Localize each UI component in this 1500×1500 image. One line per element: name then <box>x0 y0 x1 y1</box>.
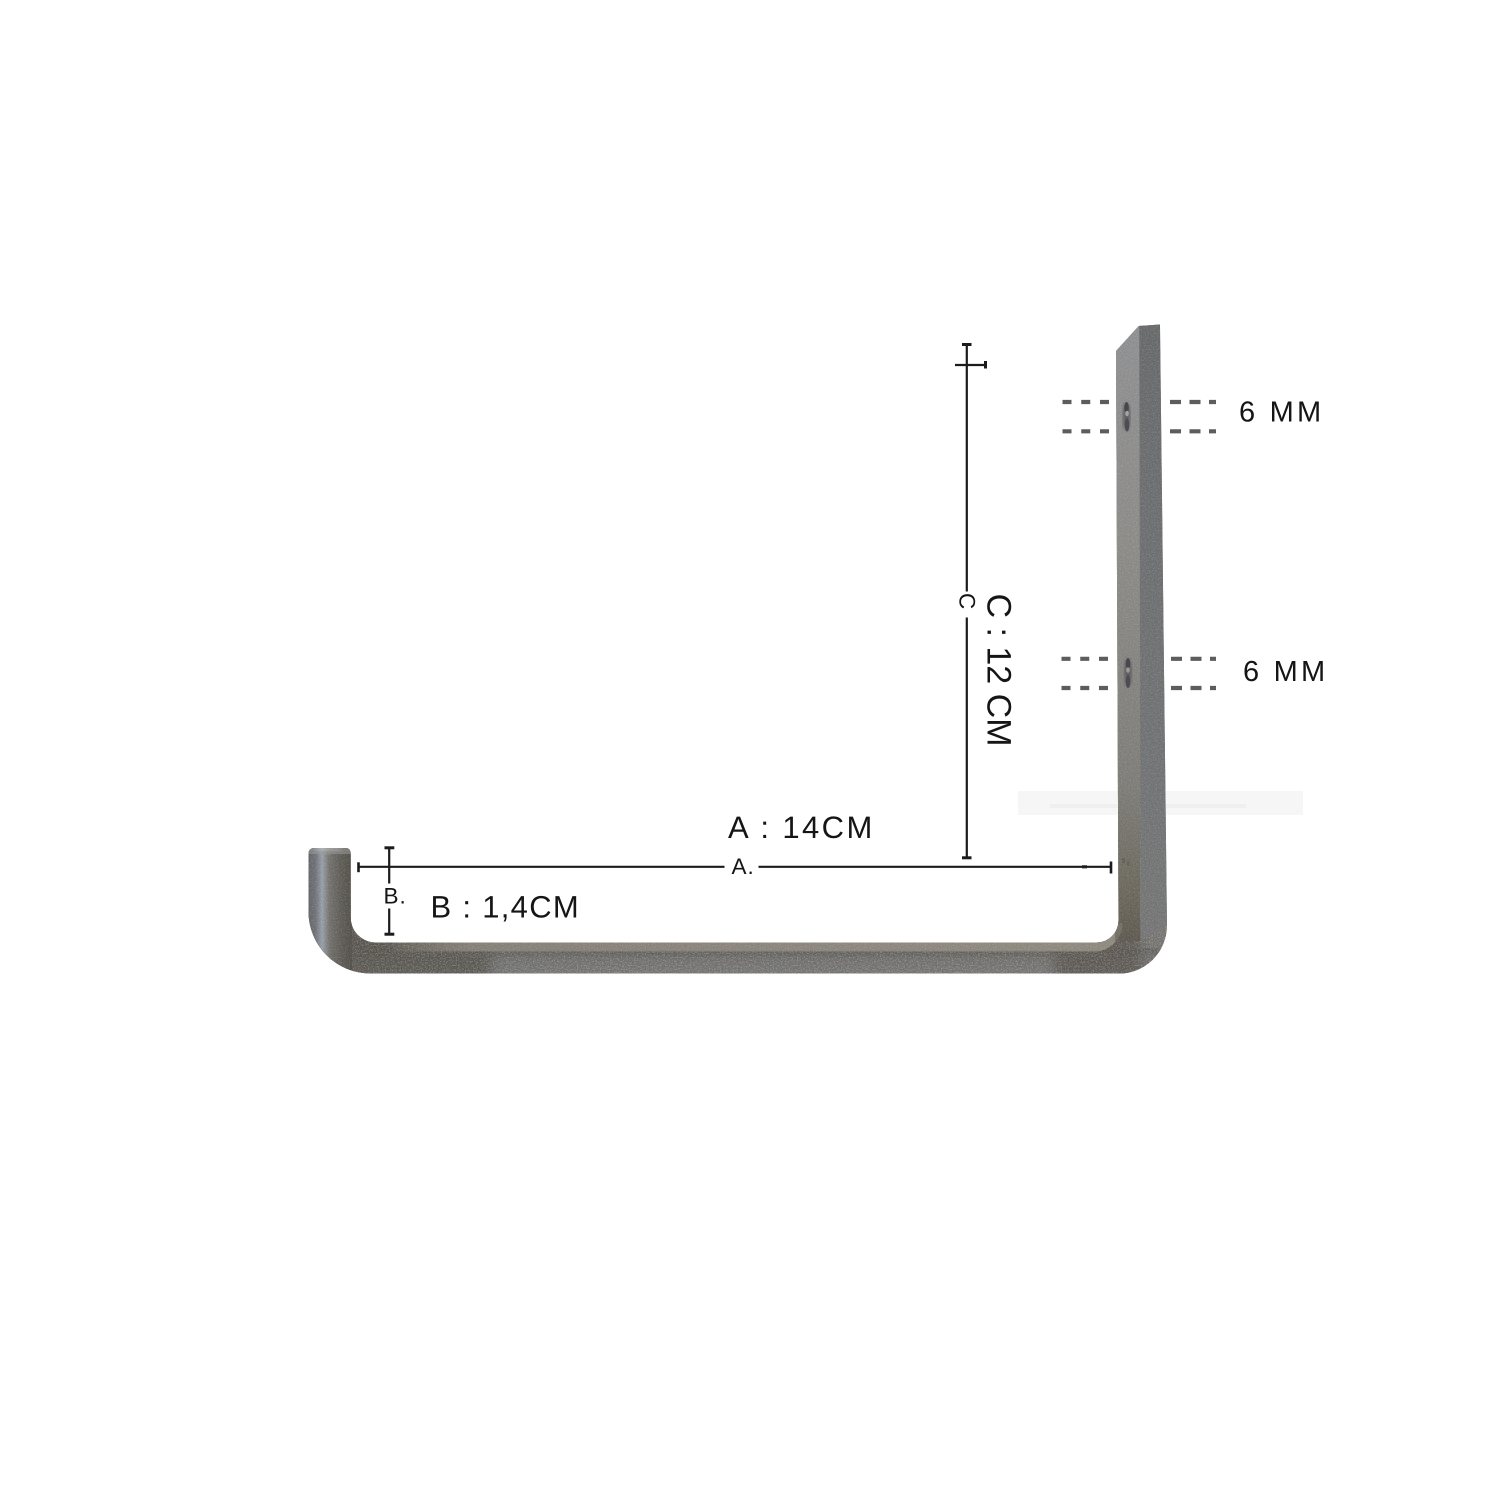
svg-text:C: C <box>955 593 980 609</box>
svg-text:6 MM: 6 MM <box>1239 397 1324 429</box>
svg-text:C : 12 CM: C : 12 CM <box>980 594 1018 747</box>
svg-text:A.: A. <box>732 854 755 879</box>
svg-text:B : 1,4CM: B : 1,4CM <box>431 889 581 924</box>
svg-text:A : 14CM: A : 14CM <box>728 810 875 845</box>
svg-text:6 MM: 6 MM <box>1243 656 1328 688</box>
svg-text:B.: B. <box>384 883 407 908</box>
